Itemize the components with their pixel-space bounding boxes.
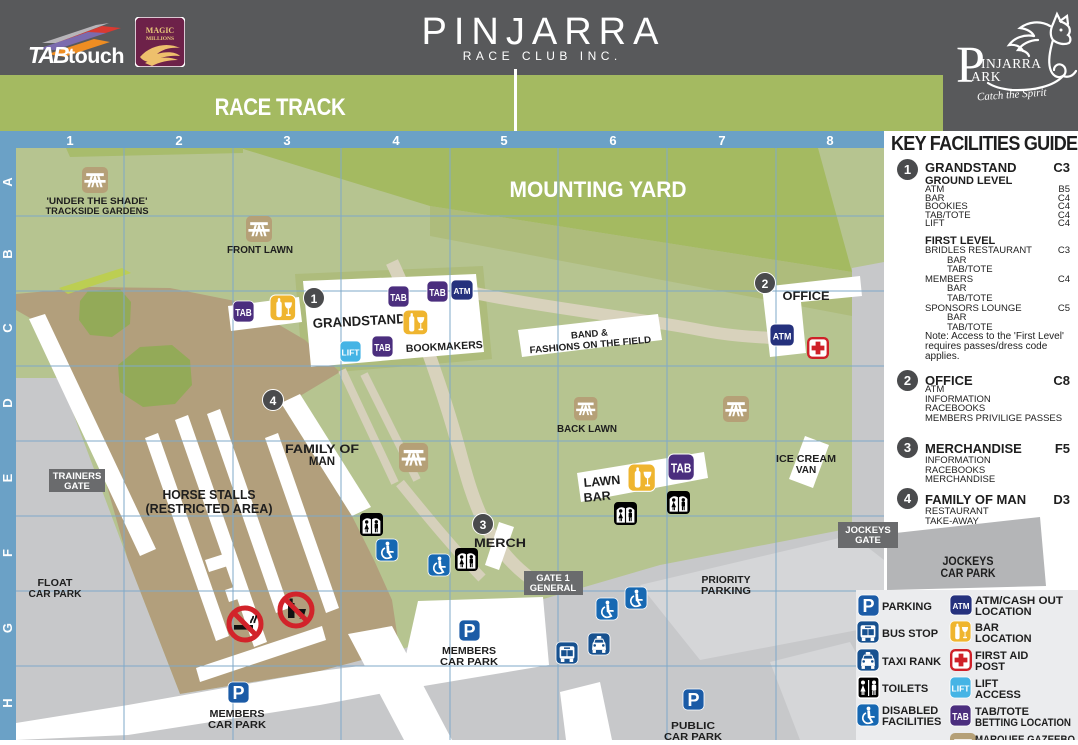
svg-text:4: 4 [270,394,277,408]
svg-text:FAMILY OF: FAMILY OF [285,444,359,456]
svg-text:BUS STOP: BUS STOP [882,628,938,640]
svg-text:LOCATION: LOCATION [975,606,1032,618]
svg-text:G: G [0,623,15,633]
svg-text:8: 8 [826,133,833,148]
svg-text:GENERAL: GENERAL [530,583,577,594]
svg-text:LOCATION: LOCATION [975,633,1032,645]
svg-text:CAR PARK: CAR PARK [208,719,266,731]
svg-text:PARKING: PARKING [882,601,932,613]
svg-text:A: A [0,177,15,187]
svg-text:TRACKSIDE GARDENS: TRACKSIDE GARDENS [46,206,149,217]
svg-text:6: 6 [609,133,616,148]
svg-text:CAR PARK: CAR PARK [29,589,83,600]
svg-text:D: D [0,398,15,407]
svg-text:ICE CREAM: ICE CREAM [776,454,836,465]
svg-text:MAN: MAN [309,456,335,468]
svg-text:ACCESS: ACCESS [975,689,1021,701]
svg-text:5: 5 [500,133,507,148]
svg-text:TOILETS: TOILETS [882,683,928,695]
svg-text:FRONT LAWN: FRONT LAWN [227,244,293,256]
svg-text:MERCH: MERCH [474,538,526,550]
svg-text:MARQUEE,GAZEEBO: MARQUEE,GAZEEBO [975,734,1075,740]
svg-text:MOUNTING YARD: MOUNTING YARD [510,177,687,202]
svg-text:4: 4 [392,133,400,148]
svg-text:E: E [0,473,15,482]
svg-text:TAXI RANK: TAXI RANK [882,656,941,668]
svg-text:VAN: VAN [796,465,816,476]
svg-text:CAR PARK: CAR PARK [664,731,722,740]
svg-text:1: 1 [311,292,318,306]
svg-text:2: 2 [762,277,769,291]
svg-text:BAR: BAR [583,489,611,505]
svg-text:B: B [0,249,15,258]
svg-text:3: 3 [480,518,487,532]
svg-text:F: F [0,549,15,557]
svg-text:(RESTRICTED AREA): (RESTRICTED AREA) [146,502,273,516]
svg-text:3: 3 [283,133,290,148]
svg-text:BETTING LOCATION: BETTING LOCATION [975,717,1071,729]
svg-text:POST: POST [975,661,1005,673]
svg-text:GATE: GATE [855,535,881,546]
svg-text:HORSE STALLS: HORSE STALLS [163,488,256,502]
svg-text:H: H [0,698,15,707]
svg-text:FLOAT: FLOAT [38,578,73,589]
svg-text:7: 7 [718,133,725,148]
svg-text:JOCKEYS: JOCKEYS [943,556,994,568]
svg-text:1: 1 [66,133,73,148]
svg-text:BACK LAWN: BACK LAWN [557,423,617,435]
svg-text:GATE: GATE [64,481,90,492]
svg-text:CAR PARK: CAR PARK [440,656,498,668]
svg-text:C: C [0,323,15,333]
svg-text:CAR PARK: CAR PARK [941,568,997,580]
svg-text:PARKING: PARKING [701,585,751,597]
svg-text:2: 2 [175,133,182,148]
svg-text:FACILITIES: FACILITIES [882,716,941,728]
svg-text:OFFICE: OFFICE [783,289,830,303]
